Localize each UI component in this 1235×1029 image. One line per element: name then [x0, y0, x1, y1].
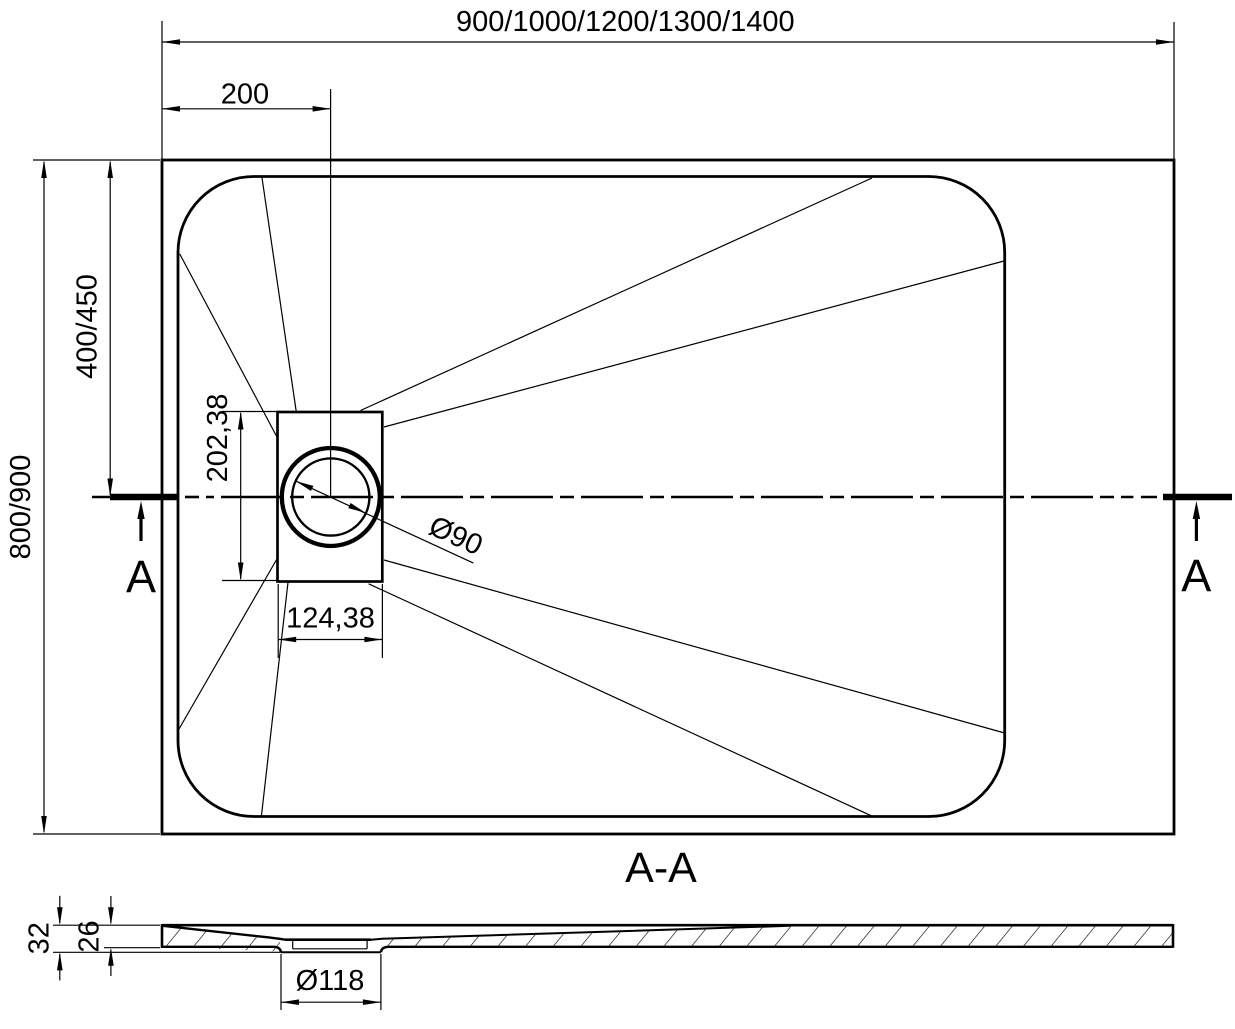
svg-text:900/1000/1200/1300/1400: 900/1000/1200/1300/1400 — [456, 6, 795, 38]
svg-text:Ø90: Ø90 — [424, 510, 487, 562]
svg-text:Ø118: Ø118 — [296, 965, 365, 997]
svg-text:800/900: 800/900 — [5, 455, 37, 560]
svg-text:200: 200 — [221, 79, 269, 111]
svg-text:124,38: 124,38 — [286, 603, 375, 635]
svg-text:202,38: 202,38 — [202, 394, 234, 483]
svg-text:A: A — [1181, 550, 1211, 601]
svg-text:400/450: 400/450 — [72, 274, 104, 379]
svg-text:32: 32 — [24, 922, 56, 954]
svg-text:A: A — [126, 551, 156, 602]
svg-text:26: 26 — [74, 920, 106, 952]
svg-text:A-A: A-A — [625, 844, 697, 892]
